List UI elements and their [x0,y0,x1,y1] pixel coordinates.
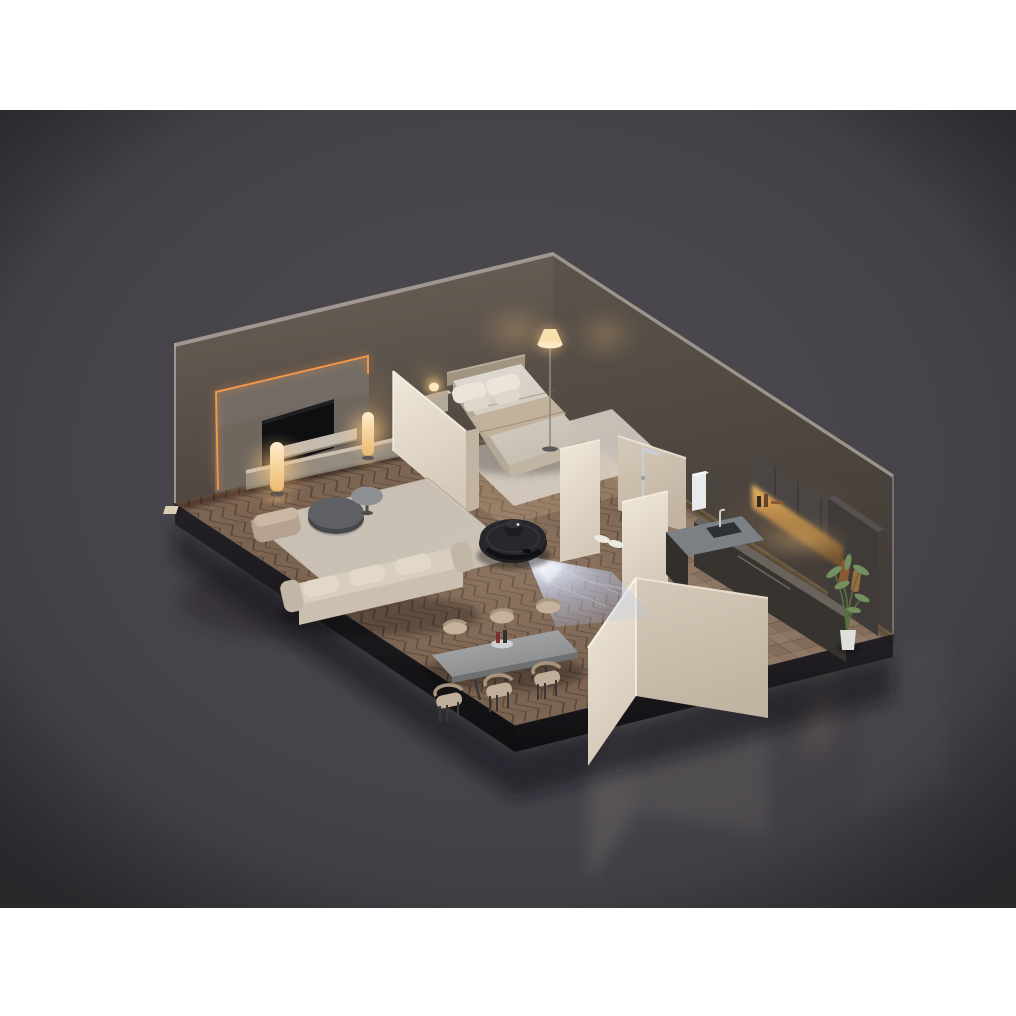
apartment-isometric-render [0,0,1016,1016]
vignette [0,110,1016,908]
render-canvas: 3D isometric cutaway render of a dimly l… [0,0,1016,1016]
